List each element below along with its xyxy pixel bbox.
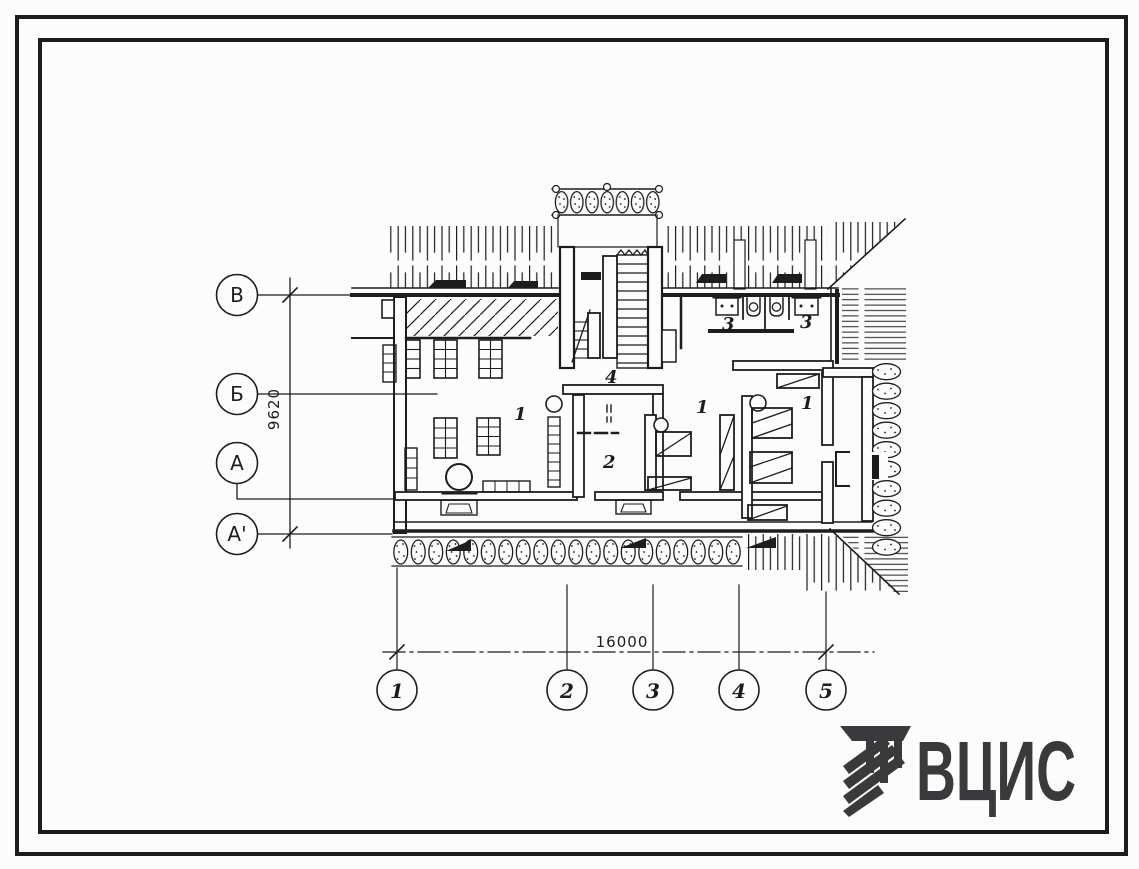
stair-stringer-small — [588, 313, 600, 358]
bunk-bed — [752, 408, 792, 438]
axis-label-2: 2 — [559, 679, 574, 703]
column-axes: 16000 1 2 3 4 5 — [377, 568, 874, 710]
corner-dot — [553, 186, 560, 193]
axis-label-b: Б — [230, 382, 244, 406]
wall-pilaster — [382, 300, 394, 318]
axis-label-a: А — [230, 451, 244, 475]
drawing-sheet: В Б А А' 9620 16000 1 2 3 4 5 — [0, 0, 1139, 869]
column-circle — [546, 396, 562, 412]
dimension-vertical: 9620 — [265, 388, 283, 430]
dimension-horizontal: 16000 — [596, 633, 649, 651]
hatched-slab — [406, 299, 558, 336]
corner-dot — [604, 184, 611, 191]
axis-label-4: 4 — [732, 679, 746, 703]
stair-flight — [617, 255, 648, 368]
stair-wall-right — [648, 247, 662, 368]
logo: ВЦИС — [840, 724, 1076, 818]
earth-hatch-top-right — [666, 226, 828, 288]
side-exit-opening — [872, 455, 879, 479]
stove — [446, 464, 472, 490]
wall-annex-top — [823, 368, 873, 377]
room-label-hall-center: 1 — [696, 397, 709, 418]
wall-right-room-top — [733, 361, 833, 370]
vent-shaft-left — [734, 240, 745, 289]
axis-label-5: 5 — [819, 679, 833, 703]
room-label-hall-right: 1 — [801, 393, 814, 414]
wall-right-room-lower — [822, 462, 833, 523]
toilet-fixtures — [662, 297, 820, 362]
logo-icon — [840, 726, 911, 817]
wall-room2-left — [573, 395, 584, 497]
exit-door — [836, 452, 849, 486]
left-hall — [383, 299, 562, 493]
room-label-wc-left: 3 — [722, 314, 735, 335]
bunk-tier — [720, 415, 734, 490]
axis-label-v: В — [230, 283, 244, 307]
radiator — [662, 330, 676, 362]
axis-label-3: 3 — [646, 679, 660, 703]
sink — [716, 298, 738, 315]
room-label-wc-right: 3 — [800, 312, 813, 333]
break-line-zigzag — [617, 250, 648, 255]
vent-shaft-right — [805, 240, 816, 289]
stair-stringer — [603, 256, 617, 358]
floor-plan-drawing: В Б А А' 9620 16000 1 2 3 4 5 — [0, 0, 1139, 869]
stair-wall-left — [560, 247, 574, 368]
entrance-top — [552, 184, 663, 248]
bunk-bed — [750, 452, 792, 483]
wall-corridor-b — [595, 492, 663, 500]
axis-label-a1: А' — [227, 522, 246, 546]
door-sill — [581, 272, 601, 280]
room-label-stairwell: 4 — [605, 367, 618, 388]
earth-hatch-top-left — [389, 226, 556, 288]
earth-hatch-right — [842, 288, 906, 363]
room-label-room-two: 2 — [602, 452, 616, 473]
sandbag-row-bottom — [392, 538, 742, 565]
room-label-hall-left: 1 — [514, 404, 527, 425]
stairwell — [560, 247, 662, 368]
wall-corridor-a — [395, 492, 577, 500]
wall-right-room-upper — [822, 372, 833, 445]
sandbag-row-top — [554, 190, 660, 214]
axis-label-1: 1 — [390, 679, 404, 703]
corner-dot — [656, 186, 663, 193]
ladder-rack — [548, 417, 560, 487]
logo-text: ВЦИС — [916, 724, 1076, 818]
pillow — [654, 418, 668, 432]
